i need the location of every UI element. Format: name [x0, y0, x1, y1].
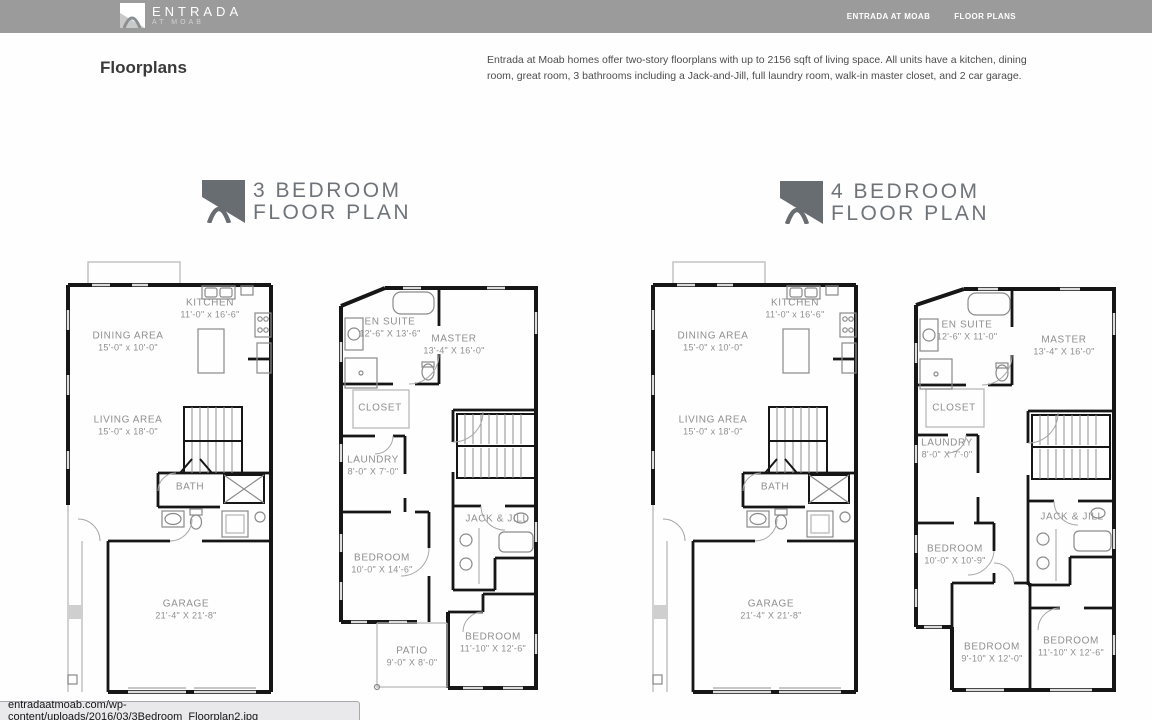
arch-plan-icon-3br [202, 180, 245, 223]
room-bedroom-1: BEDROOM 10'-0" X 14'-6" [351, 552, 412, 577]
room-jack-and-jill: JACK & JILL [1040, 511, 1103, 524]
four-bedroom-title-line1: 4 BEDROOM [831, 181, 989, 203]
four-bedroom-title-line2: FLOOR PLAN [831, 203, 989, 225]
floorplan-3br-first-floor-drawing [62, 255, 283, 695]
room-laundry: LAUNDRY 8'-0" X 7'-0" [921, 437, 973, 462]
arch-logo-icon [120, 3, 145, 28]
room-laundry: LAUNDRY 8'-0" X 7'-0" [347, 454, 399, 479]
three-bedroom-title-line1: 3 BEDROOM [253, 180, 411, 202]
floorplan-4br-first-floor[interactable]: KITCHEN 11'-0" x 16'-6" DINING AREA 15'-… [647, 255, 868, 695]
room-dining: DINING AREA 15'-0" x 10'-0" [677, 330, 748, 355]
room-bedroom-3: BEDROOM 11'-10" X 12'-6" [1038, 635, 1104, 660]
room-kitchen: KITCHEN 11'-0" x 16'-6" [765, 297, 824, 322]
room-bath: BATH [176, 481, 204, 494]
status-url: entradaatmoab.com/wp-content/uploads/201… [8, 699, 351, 720]
floorplan-4br-first-floor-drawing [647, 255, 868, 695]
nav-entrada-at-moab[interactable]: ENTRADA AT MOAB [847, 12, 930, 21]
room-bedroom-1: BEDROOM 10'-0" X 10'-9" [924, 543, 985, 568]
room-master: MASTER 13'-4" X 16'-0" [423, 333, 484, 358]
room-garage: GARAGE 21'-4" X 21'-8" [740, 598, 801, 623]
browser-status-bar: entradaatmoab.com/wp-content/uploads/201… [0, 701, 360, 720]
floorplan-3br-second-floor[interactable]: EN SUITE 12'-6" X 13'-6" MASTER 13'-4" X… [337, 282, 540, 700]
room-bedroom-2: BEDROOM 9'-10" X 12'-0" [961, 641, 1022, 666]
floorplan-4br-second-floor[interactable]: EN SUITE 12'-6" X 11'-0" MASTER 13'-4" X… [908, 283, 1122, 710]
room-jack-and-jill: JACK & JILL [465, 513, 528, 526]
room-living: LIVING AREA 15'-0" x 18'-0" [94, 414, 163, 439]
logo-title: ENTRADA [152, 5, 242, 19]
room-closet: CLOSET [932, 402, 976, 415]
room-closet: CLOSET [358, 402, 402, 415]
page-title: Floorplans [100, 58, 187, 78]
intro-description: Entrada at Moab homes offer two-story fl… [487, 53, 1043, 84]
logo-text: ENTRADA AT MOAB [152, 5, 242, 27]
room-ensuite: EN SUITE 12'-6" X 11'-0" [937, 319, 998, 344]
room-ensuite: EN SUITE 12'-6" X 13'-6" [359, 316, 420, 341]
site-logo[interactable]: ENTRADA AT MOAB [120, 3, 242, 28]
room-kitchen: KITCHEN 11'-0" x 16'-6" [180, 297, 239, 322]
room-living: LIVING AREA 15'-0" x 18'-0" [679, 414, 748, 439]
page: ENTRADA AT MOAB ENTRADA AT MOAB FLOOR PL… [0, 0, 1152, 720]
floorplan-3br-first-floor[interactable]: KITCHEN 11'-0" x 16'-6" DINING AREA 15'-… [62, 255, 283, 695]
room-dining: DINING AREA 15'-0" x 10'-0" [92, 330, 163, 355]
three-bedroom-title-line2: FLOOR PLAN [253, 202, 411, 224]
logo-subtitle: AT MOAB [152, 19, 242, 27]
main-nav: ENTRADA AT MOAB FLOOR PLANS [847, 0, 1016, 33]
three-bedroom-title: 3 BEDROOM FLOOR PLAN [202, 180, 411, 224]
room-bath: BATH [761, 481, 789, 494]
four-bedroom-title: 4 BEDROOM FLOOR PLAN [780, 181, 989, 225]
nav-floor-plans[interactable]: FLOOR PLANS [954, 12, 1016, 21]
room-master: MASTER 13'-4" X 16'-0" [1033, 334, 1094, 359]
room-patio: PATIO 9'-0" X 8'-0" [387, 645, 438, 670]
room-bedroom-2: BEDROOM 11'-10" X 12'-6" [460, 631, 526, 656]
site-header: ENTRADA AT MOAB ENTRADA AT MOAB FLOOR PL… [0, 0, 1152, 33]
arch-plan-icon-4br [780, 181, 823, 224]
room-garage: GARAGE 21'-4" X 21'-8" [155, 598, 216, 623]
